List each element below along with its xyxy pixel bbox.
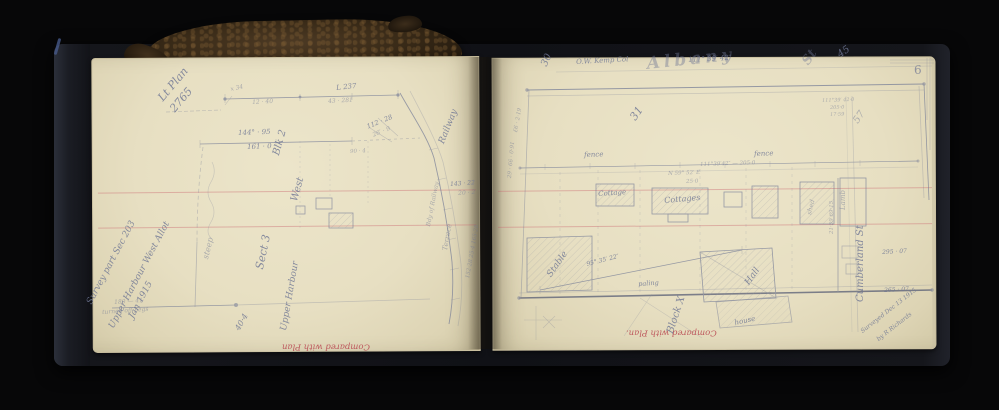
handwritten-annotation: O.W. Kemp Col (576, 56, 629, 66)
handwritten-annotation: fence (584, 151, 604, 159)
handwritten-annotation: house (734, 316, 756, 327)
handwritten-annotation: 17·59 (830, 112, 844, 117)
handwritten-annotation: Cumberland St (856, 225, 866, 302)
handwritten-annotation: Albany (646, 47, 736, 73)
handwritten-annotation: fence (754, 150, 774, 158)
handwritten-annotation: Hall (744, 266, 762, 287)
handwritten-annotation: 6 (914, 64, 923, 76)
handwritten-annotation: 21·59 69·15 (830, 201, 836, 234)
handwritten-annotation: 57 (852, 110, 867, 126)
handwritten-annotation: Lamb (840, 190, 847, 210)
handwritten-annotation: 45 (836, 45, 852, 60)
handwritten-annotation: Compared with Plan. (626, 328, 717, 337)
handwritten-annotation: Stable (546, 250, 570, 279)
handwritten-annotation: 29 · 66 · 0·91 (508, 141, 517, 178)
handwritten-annotation: paling (638, 280, 659, 288)
handwritten-annotation: 95° 35′ 22″ (586, 254, 620, 268)
right-page-annotations: 6O.W. Kemp Col111° 39′ 42″AlbanySt453031… (0, 0, 999, 410)
handwritten-annotation: 31 (628, 105, 645, 123)
handwritten-annotation: £6 · 2·19 (514, 108, 524, 133)
handwritten-annotation: shed (806, 199, 816, 216)
handwritten-annotation: 111°39′ 42·0 (822, 98, 854, 104)
photo-background: Survey part Sec 203Upper Harbour West Al… (0, 0, 999, 410)
handwritten-annotation: Cottage (598, 189, 626, 198)
handwritten-annotation: 205·0 (830, 105, 844, 110)
handwritten-annotation: 30 (540, 52, 554, 68)
handwritten-annotation: St (800, 47, 819, 67)
handwritten-annotation: 295 · 07 (882, 249, 907, 256)
handwritten-annotation: 111°39′42″ — 205·0 (700, 161, 755, 168)
handwritten-annotation: N 59° 52′ E (668, 171, 700, 178)
handwritten-annotation: 25·0 (686, 180, 698, 186)
handwritten-annotation: Cottages (664, 194, 701, 205)
